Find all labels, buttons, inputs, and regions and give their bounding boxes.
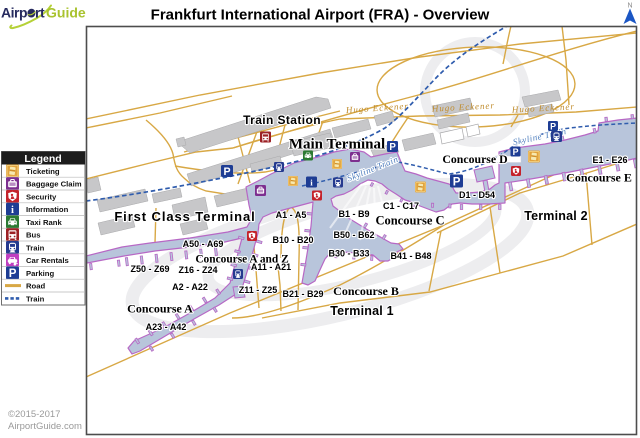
svg-text:Train Station: Train Station — [243, 113, 321, 127]
svg-text:D1 - D54: D1 - D54 — [459, 190, 495, 200]
svg-text:A23 - A42: A23 - A42 — [146, 322, 187, 332]
svg-text:Airport: Airport — [1, 5, 45, 21]
svg-text:Taxi Rank: Taxi Rank — [26, 218, 62, 227]
svg-text:Main Terminal: Main Terminal — [289, 137, 385, 153]
svg-text:Concourse E: Concourse E — [566, 171, 632, 185]
svg-text:Baggage Claim: Baggage Claim — [26, 180, 82, 189]
svg-text:Z50 - Z69: Z50 - Z69 — [130, 264, 169, 274]
svg-text:A2 - A22: A2 - A22 — [172, 282, 208, 292]
svg-text:A11 - A21: A11 - A21 — [251, 262, 291, 272]
svg-text:Terminal 1: Terminal 1 — [330, 304, 394, 318]
svg-text:Train: Train — [26, 294, 45, 303]
svg-text:B30 - B33: B30 - B33 — [328, 249, 369, 259]
svg-text:E1 - E26: E1 - E26 — [592, 155, 627, 165]
svg-text:Train: Train — [26, 243, 45, 252]
svg-text:A1 - A5: A1 - A5 — [276, 210, 307, 220]
svg-text:Concourse B: Concourse B — [333, 284, 399, 298]
svg-text:Bus: Bus — [26, 231, 41, 240]
svg-text:Information: Information — [26, 205, 69, 214]
svg-text:©2015-2017: ©2015-2017 — [8, 409, 60, 420]
svg-text:B21 - B29: B21 - B29 — [282, 289, 323, 299]
svg-text:Concourse C: Concourse C — [375, 214, 444, 228]
svg-text:Car Rentals: Car Rentals — [26, 256, 69, 265]
svg-text:Guide: Guide — [46, 5, 86, 21]
svg-text:Frankfurt International Airpor: Frankfurt International Airport (FRA) - … — [151, 7, 490, 24]
svg-text:Concourse D: Concourse D — [442, 152, 507, 166]
svg-text:B1 - B9: B1 - B9 — [338, 209, 369, 219]
svg-text:Road: Road — [26, 282, 46, 291]
svg-text:Terminal 2: Terminal 2 — [524, 209, 588, 223]
svg-text:Legend: Legend — [24, 153, 61, 165]
svg-text:Z11 - Z25: Z11 - Z25 — [239, 285, 278, 295]
svg-text:Parking: Parking — [26, 269, 55, 278]
svg-text:Security: Security — [26, 192, 57, 201]
svg-text:B10 - B20: B10 - B20 — [272, 235, 313, 245]
svg-text:A50 - A69: A50 - A69 — [183, 239, 224, 249]
svg-text:Concourse A: Concourse A — [127, 302, 193, 316]
svg-text:N: N — [627, 3, 632, 10]
svg-text:AirportGuide.com: AirportGuide.com — [8, 421, 82, 432]
svg-text:B41 - B48: B41 - B48 — [390, 251, 431, 261]
svg-text:Ticketing: Ticketing — [26, 167, 60, 176]
svg-text:C1 - C17: C1 - C17 — [383, 201, 419, 211]
svg-text:First Class Terminal: First Class Terminal — [114, 209, 255, 224]
svg-text:B50 - B62: B50 - B62 — [333, 230, 374, 240]
svg-text:Z16 - Z24: Z16 - Z24 — [178, 265, 217, 275]
